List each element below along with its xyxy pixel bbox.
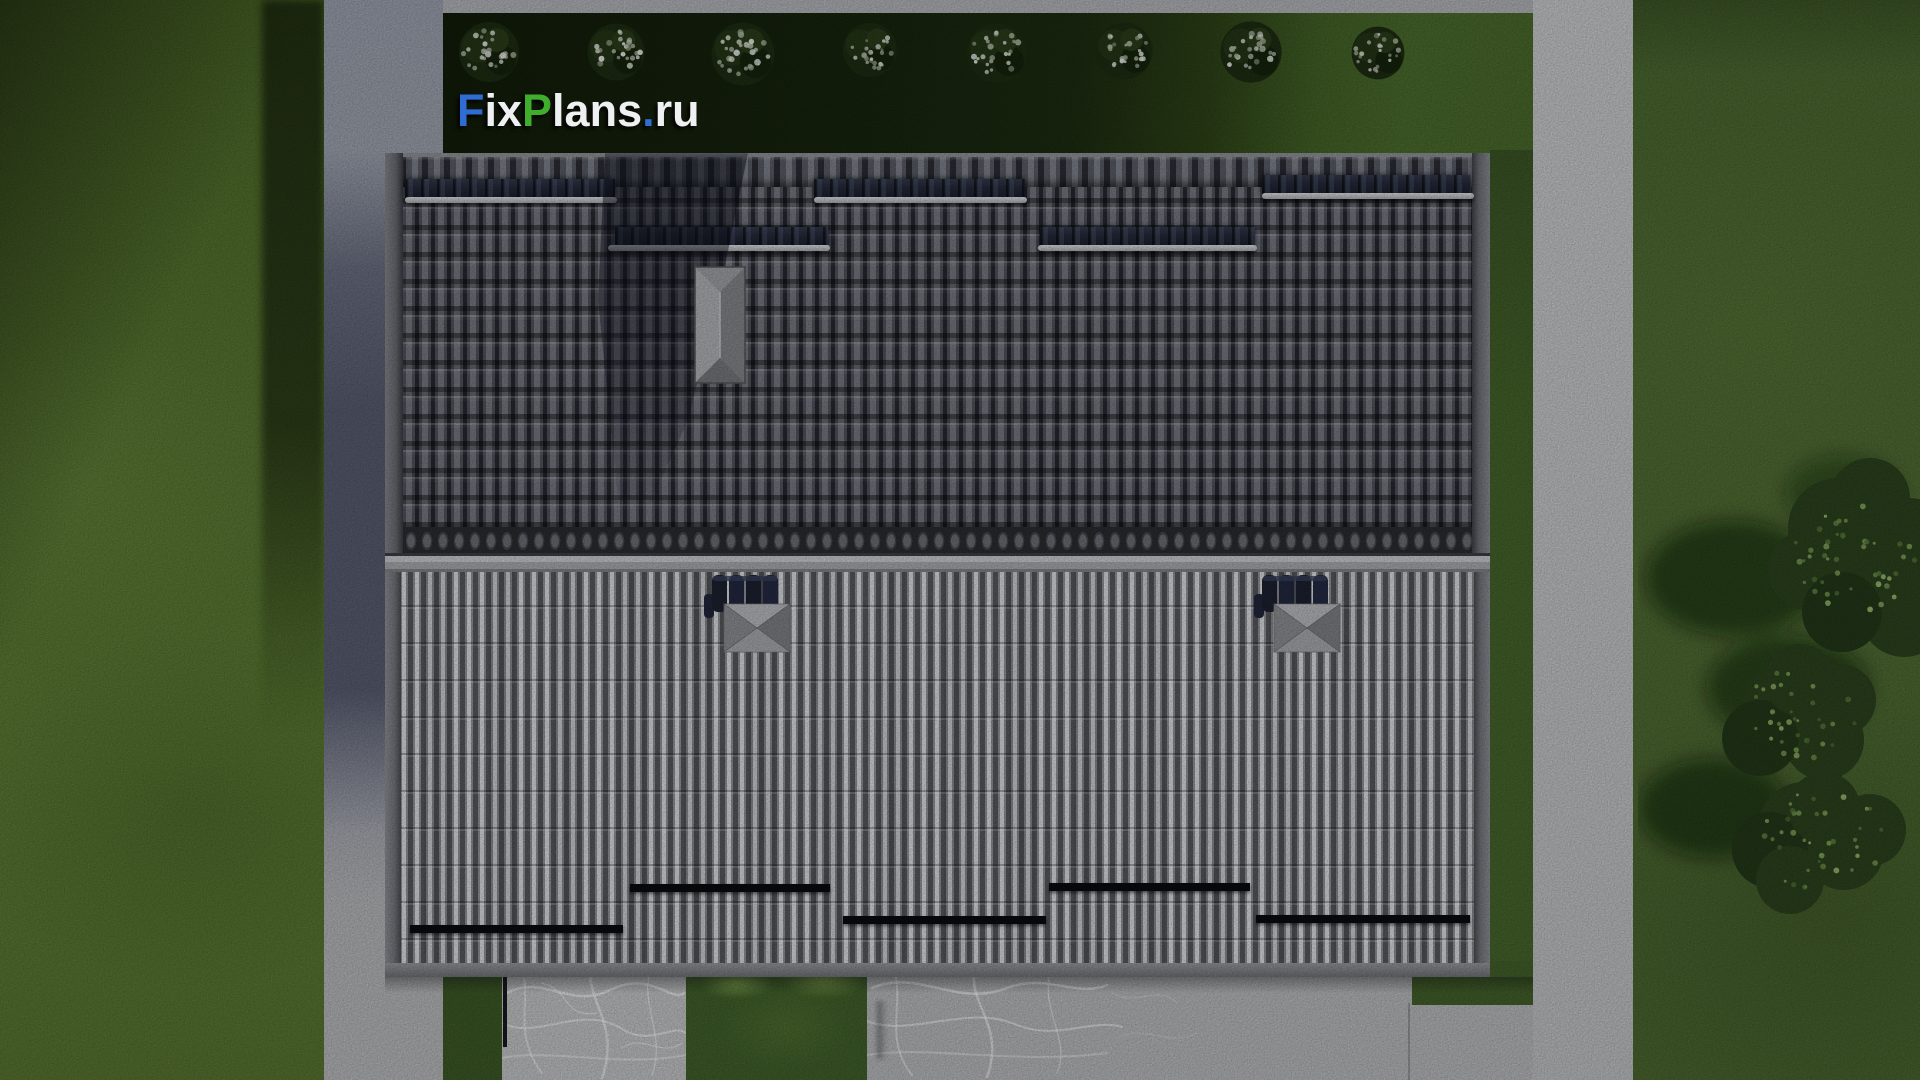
roof-step-fascia [385, 553, 1490, 572]
snow-guard-rail [405, 197, 617, 203]
snow-stopper-bar [843, 916, 1046, 924]
pyramid-hatch-icon [724, 604, 790, 652]
roof-fascia-east [1472, 153, 1490, 553]
snow-stopper-bar [1049, 883, 1250, 891]
watermark-segment: F [457, 85, 485, 136]
watermark-segment: lans [552, 85, 642, 136]
pyramid-hatch-icon [1274, 604, 1340, 652]
roof-tiled-section [385, 153, 1490, 553]
tree-shadow-on-roof [385, 153, 1490, 553]
roof-hatch-unit [700, 572, 800, 657]
roof-fascia-west [385, 572, 401, 963]
snow-guard-rail [1262, 193, 1474, 199]
roof-fascia-west [385, 153, 403, 553]
house-shadow-on-grass [262, 0, 324, 770]
roof-vent-band [405, 179, 615, 198]
chimney [693, 265, 747, 385]
pad-edge-shadow [877, 1001, 887, 1059]
watermark-segment: . [642, 85, 655, 136]
snow-stopper-bar [1256, 915, 1470, 923]
watermark-segment: P [522, 85, 552, 136]
aerial-render: FixPlans.ru [0, 0, 1920, 1080]
watermark-logo: FixPlans.ru [457, 88, 700, 133]
roof-vent-band [1262, 175, 1470, 194]
roof-eave-tile-row [403, 527, 1472, 553]
roof-hatch-unit [1250, 572, 1350, 657]
roof-fascia-east [1474, 572, 1490, 963]
watermark-segment: ix [485, 85, 523, 136]
eave-shadow-on-ground [385, 977, 1533, 993]
snow-guard-rail [1038, 245, 1257, 251]
side-lawn-east [1490, 150, 1533, 1010]
roof-eave-fascia-south [385, 963, 1490, 977]
roof-vent-band [814, 179, 1025, 198]
concrete-path-east [1533, 0, 1633, 1080]
snow-stopper-bar [410, 925, 623, 933]
snow-guard-rail [814, 197, 1027, 203]
snow-stopper-bar [630, 884, 830, 892]
tree-cluster-group [1638, 388, 1920, 920]
watermark-segment: ru [655, 85, 700, 136]
expansion-joint [1408, 1003, 1410, 1080]
roof-vent-band [1040, 227, 1255, 246]
